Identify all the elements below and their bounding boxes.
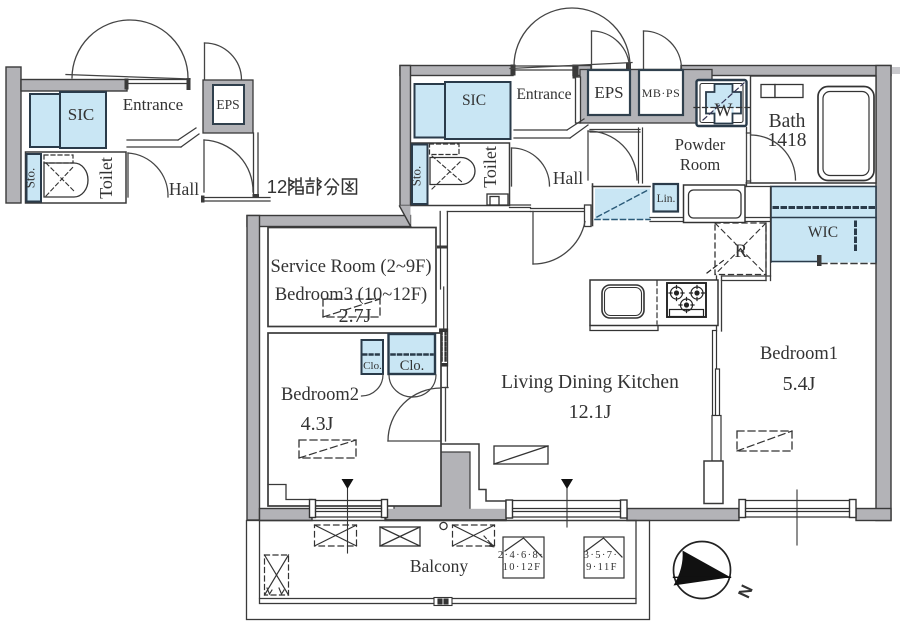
svg-text:Clo.: Clo. [400, 358, 425, 374]
svg-text:Entrance: Entrance [123, 95, 183, 114]
svg-text:Hall: Hall [169, 179, 199, 199]
svg-text:4.3J: 4.3J [301, 413, 334, 435]
svg-text:5.4J: 5.4J [783, 373, 816, 395]
svg-text:SIC: SIC [462, 92, 486, 109]
svg-text:10·12F: 10·12F [503, 562, 542, 573]
svg-text:EPS: EPS [216, 97, 239, 112]
svg-text:Entrance: Entrance [516, 86, 571, 103]
svg-text:12.1J: 12.1J [569, 401, 612, 423]
svg-text:Clo.: Clo. [363, 360, 382, 372]
svg-text:3·5·7·: 3·5·7· [584, 550, 619, 561]
svg-text:Sto.: Sto. [23, 168, 38, 189]
svg-text:Sto.: Sto. [409, 166, 424, 187]
svg-text:Bedroom3 (10~12F): Bedroom3 (10~12F) [275, 285, 427, 305]
svg-text:SIC: SIC [68, 105, 94, 124]
svg-text:9·11F: 9·11F [586, 562, 618, 573]
svg-text:Service Room (2~9F): Service Room (2~9F) [270, 257, 431, 277]
svg-text:WIC: WIC [808, 224, 838, 241]
svg-text:Hall: Hall [553, 168, 583, 188]
svg-text:Bath: Bath [769, 111, 806, 132]
svg-text:Balcony: Balcony [410, 556, 469, 576]
svg-text:R: R [735, 241, 748, 262]
svg-text:Lin.: Lin. [657, 193, 676, 205]
svg-text:MB·PS: MB·PS [642, 86, 681, 100]
svg-text:W: W [715, 100, 733, 121]
svg-text:12: 12 [267, 176, 288, 197]
svg-text:Bedroom1: Bedroom1 [760, 344, 838, 364]
svg-text:Powder: Powder [675, 135, 726, 154]
svg-text:Room: Room [680, 155, 721, 174]
svg-text:2.7J: 2.7J [339, 305, 372, 327]
svg-text:Living Dining Kitchen: Living Dining Kitchen [501, 372, 679, 393]
svg-text:N: N [734, 582, 756, 601]
svg-text:Toilet: Toilet [480, 146, 500, 188]
svg-text:Bedroom2: Bedroom2 [281, 385, 359, 405]
svg-text:2·4·6·8·: 2·4·6·8· [498, 550, 544, 561]
svg-text:EPS: EPS [594, 83, 623, 102]
svg-text:Toilet: Toilet [96, 157, 116, 199]
